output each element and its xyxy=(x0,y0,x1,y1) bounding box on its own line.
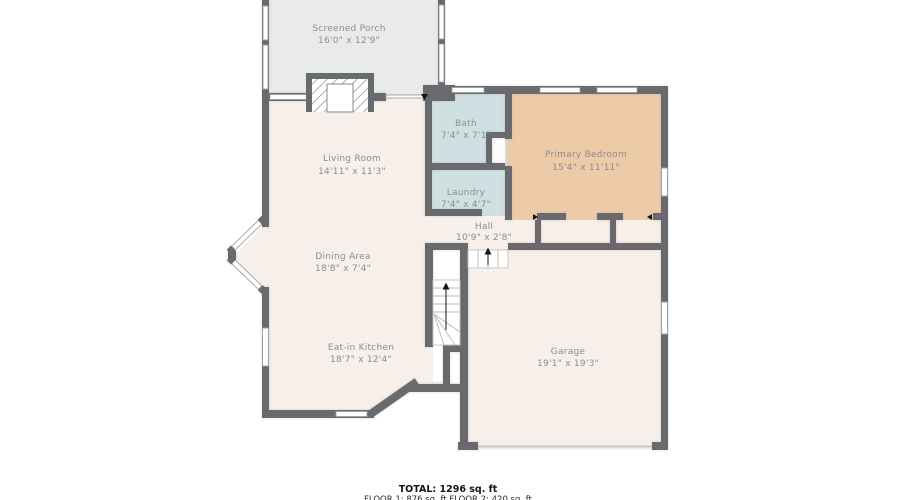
porch-left-screen-2 xyxy=(263,45,268,89)
porch-right-screen-2 xyxy=(439,44,444,82)
porch-right-screen-1 xyxy=(439,5,444,39)
bath-window xyxy=(452,88,484,93)
wall-bath-laundry-divider xyxy=(425,163,505,170)
bath-label: Bath xyxy=(455,119,477,129)
eat-in-kitchen-dims: 18'7" x 12'4" xyxy=(330,355,392,365)
dining-area-dims: 18'8" x 7'4" xyxy=(315,264,371,274)
garage-label: Garage xyxy=(551,347,586,357)
laundry-dims: 7'4" x 4'7" xyxy=(441,200,491,210)
screened-porch-label: Screened Porch xyxy=(312,24,385,34)
garage-dims: 19'1" x 19'3" xyxy=(537,359,599,369)
fireplace xyxy=(306,73,374,112)
wall-bath-bedroom-lower xyxy=(505,166,512,220)
wall-closet-stub-2 xyxy=(610,220,616,244)
floors xyxy=(233,0,668,450)
wall-hall-bottom-right xyxy=(508,243,668,250)
living-room-top-window xyxy=(270,95,308,100)
laundry-label: Laundry xyxy=(447,188,486,198)
footer-floor-areas: FLOOR 1: 876 sq. ft FLOOR 2: 420 sq. ft xyxy=(364,495,533,500)
floor-plan-drawing: Screened Porch 16'0" x 12'9" Living Room… xyxy=(0,0,900,500)
wall-garage-bottom-left-stub xyxy=(458,442,478,450)
hall-label: Hall xyxy=(475,222,493,232)
primary-bedroom-dims: 15'4" x 11'11" xyxy=(552,163,620,173)
living-room-dims: 14'11" x 11'3" xyxy=(318,167,386,177)
kitchen-side-window xyxy=(263,328,269,366)
wall-garage-bottom-right-stub xyxy=(652,442,668,450)
porch-slider-door xyxy=(386,95,423,98)
floor-plan-page: Screened Porch 16'0" x 12'9" Living Room… xyxy=(0,0,900,500)
footer-total-area: TOTAL: 1296 sq. ft xyxy=(399,484,498,495)
bath-dims: 7'4" x 7'1" xyxy=(441,131,491,141)
bedroom-window-1 xyxy=(540,88,580,93)
porch-left-screen-1 xyxy=(263,6,268,40)
wall-bath-bedroom-upper xyxy=(505,86,512,139)
footer: TOTAL: 1296 sq. ft FLOOR 1: 876 sq. ft F… xyxy=(364,484,533,500)
wall-west-upper xyxy=(262,93,269,227)
wall-east-exterior xyxy=(661,86,668,450)
wall-closet-stub-1 xyxy=(535,220,541,244)
wall-bedroom-bottom-3 xyxy=(653,213,668,220)
living-room-label: Living Room xyxy=(323,154,381,164)
wall-laundry-bottom xyxy=(425,209,482,216)
wall-bedroom-bottom-1 xyxy=(537,213,566,220)
hall-dims: 10'9" x 2'8" xyxy=(456,233,512,243)
garage-side-window xyxy=(662,302,668,334)
wall-understair-closet-left xyxy=(443,345,450,387)
wall-stairwell-left xyxy=(425,243,433,347)
fireplace-firebox xyxy=(327,84,353,112)
kitchen-bottom-window xyxy=(336,412,367,417)
dining-area-label: Dining Area xyxy=(315,252,370,262)
bedroom-window-2 xyxy=(597,88,637,93)
wall-bedroom-bottom-2 xyxy=(597,213,623,220)
wall-laundry-left xyxy=(425,166,432,216)
primary-bedroom-label: Primary Bedroom xyxy=(545,150,627,160)
wall-bath-left xyxy=(425,86,432,176)
bedroom-side-window xyxy=(662,168,668,196)
eat-in-kitchen-label: Eat-in Kitchen xyxy=(328,343,394,353)
screened-porch-dims: 16'0" x 12'9" xyxy=(318,36,380,46)
bedroom-nook-floor xyxy=(492,138,505,164)
understair-closet-floor xyxy=(450,352,461,383)
